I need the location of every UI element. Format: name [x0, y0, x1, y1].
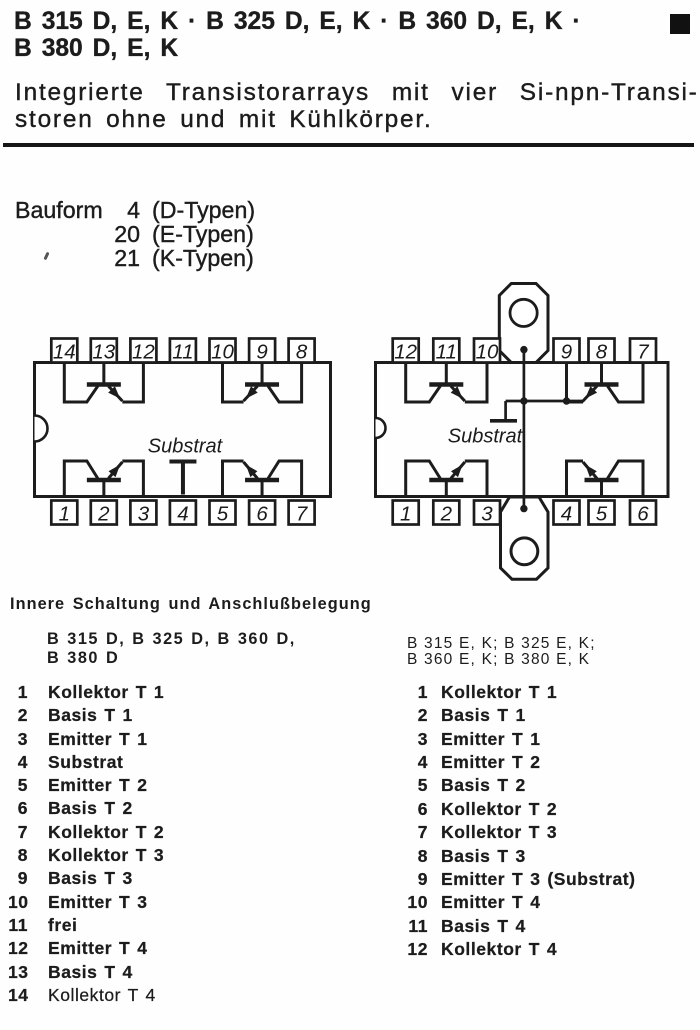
- svg-text:1: 1: [400, 503, 411, 526]
- svg-text:3: 3: [481, 503, 493, 526]
- svg-text:4: 4: [561, 503, 572, 526]
- svg-text:5: 5: [596, 503, 608, 526]
- svg-text:4: 4: [177, 503, 188, 526]
- svg-text:10: 10: [211, 341, 234, 364]
- svg-text:12: 12: [132, 341, 155, 364]
- svg-text:12: 12: [394, 341, 417, 364]
- svg-text:6: 6: [637, 503, 649, 526]
- svg-text:8: 8: [596, 341, 608, 364]
- svg-text:14: 14: [53, 341, 76, 364]
- svg-text:13: 13: [92, 341, 115, 364]
- svg-text:1: 1: [59, 503, 70, 526]
- svg-text:9: 9: [256, 341, 267, 364]
- svg-text:10: 10: [476, 341, 499, 364]
- svg-text:7: 7: [637, 341, 650, 364]
- svg-text:Substrat: Substrat: [148, 436, 224, 458]
- svg-text:9: 9: [561, 341, 572, 364]
- svg-text:11: 11: [436, 341, 457, 364]
- svg-text:6: 6: [256, 503, 268, 526]
- svg-text:5: 5: [217, 503, 229, 526]
- svg-text:Substrat: Substrat: [448, 426, 524, 448]
- svg-text:2: 2: [97, 503, 110, 526]
- svg-text:7: 7: [296, 503, 309, 526]
- svg-text:2: 2: [440, 503, 453, 526]
- svg-text:8: 8: [296, 341, 308, 364]
- svg-text:11: 11: [172, 341, 193, 364]
- svg-text:3: 3: [138, 503, 150, 526]
